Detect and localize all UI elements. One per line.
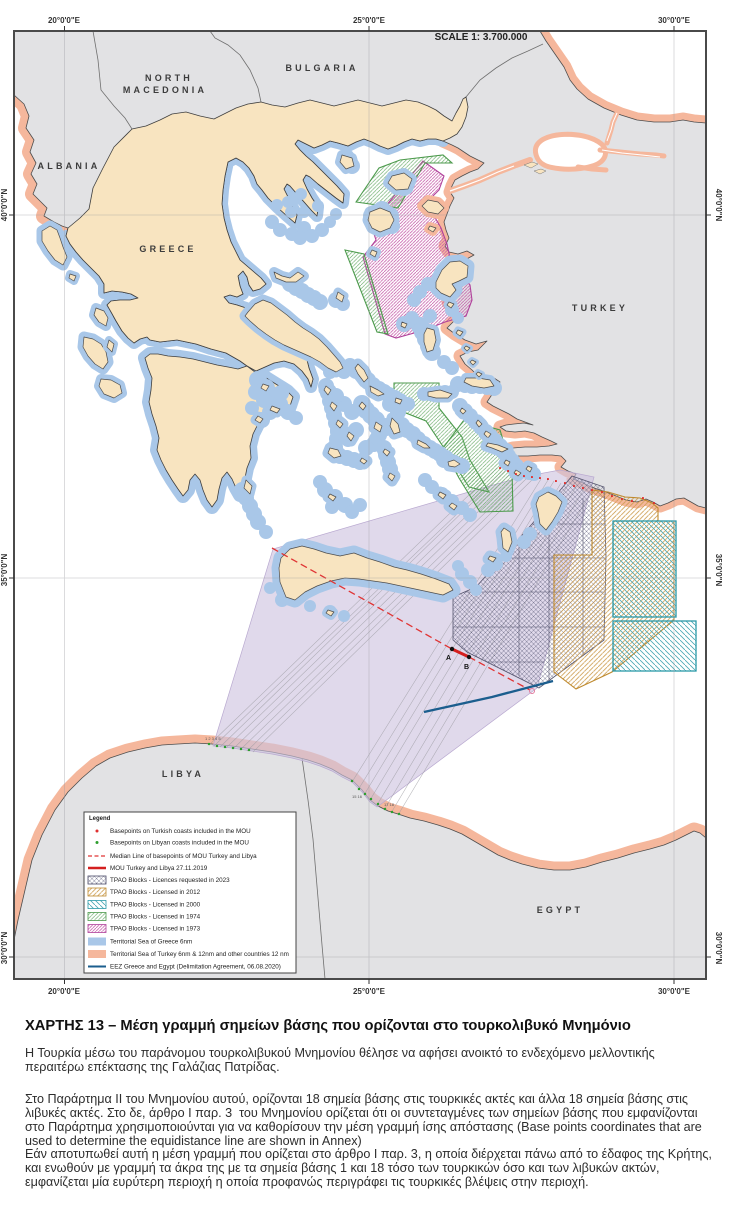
svg-text:TPAO Blocks - Licensed in 1974: TPAO Blocks - Licensed in 1974	[110, 914, 201, 921]
svg-text:MACEDONIA: MACEDONIA	[123, 85, 207, 95]
svg-text:30°0'0"E: 30°0'0"E	[658, 16, 691, 25]
svg-text:20°0'0"E: 20°0'0"E	[48, 16, 81, 25]
svg-text:MOU Turkey and Libya 27.11.201: MOU Turkey and Libya 27.11.2019	[110, 865, 208, 872]
svg-text:20°0'0"E: 20°0'0"E	[48, 987, 81, 996]
svg-text:NORTH: NORTH	[145, 73, 193, 83]
svg-text:17 18: 17 18	[384, 802, 395, 807]
svg-text:TPAO Blocks - Licensed in 2000: TPAO Blocks - Licensed in 2000	[110, 902, 201, 909]
svg-text:LIBYA: LIBYA	[162, 769, 204, 779]
svg-text:EGYPT: EGYPT	[537, 905, 584, 915]
svg-text:Basepoints on Libyan coasts in: Basepoints on Libyan coasts included in …	[110, 840, 249, 847]
svg-text:TURKEY: TURKEY	[572, 303, 628, 313]
svg-text:40°0'0"N: 40°0'0"N	[714, 189, 723, 222]
svg-text:Legend: Legend	[89, 816, 111, 822]
svg-text:TPAO Blocks - Licensed in 1973: TPAO Blocks - Licensed in 1973	[110, 926, 201, 933]
svg-text:25°0'0"E: 25°0'0"E	[353, 987, 386, 996]
svg-text:35°0'0"N: 35°0'0"N	[0, 554, 9, 587]
svg-text:ALBANIA: ALBANIA	[38, 161, 101, 171]
svg-text:30°0'0"N: 30°0'0"N	[0, 932, 9, 965]
svg-text:GREECE: GREECE	[139, 244, 196, 254]
svg-text:A: A	[446, 655, 451, 662]
svg-text:TPAO Blocks - Licensed in 2012: TPAO Blocks - Licensed in 2012	[110, 889, 201, 896]
svg-text:TPAO Blocks - Licences request: TPAO Blocks - Licences requested in 2023	[110, 877, 230, 884]
svg-text:35°0'0"N: 35°0'0"N	[714, 554, 723, 587]
svg-text:1 2 3 4 5: 1 2 3 4 5	[205, 736, 221, 741]
svg-text:B: B	[464, 664, 469, 671]
svg-text:Territorial Sea of Greece 6nm: Territorial Sea of Greece 6nm	[110, 939, 192, 946]
svg-text:Basepoints on Turkish coasts i: Basepoints on Turkish coasts included in…	[110, 828, 251, 835]
svg-text:40°0'0"N: 40°0'0"N	[0, 189, 9, 222]
svg-text:EEZ Greece and Egypt (Delimita: EEZ Greece and Egypt (Delimitation Agree…	[110, 964, 281, 971]
svg-text:25°0'0"E: 25°0'0"E	[353, 16, 386, 25]
svg-text:30°0'0"N: 30°0'0"N	[714, 932, 723, 965]
svg-text:SCALE 1: 3.700.000: SCALE 1: 3.700.000	[435, 32, 528, 43]
svg-text:BULGARIA: BULGARIA	[285, 63, 358, 73]
svg-text:Territorial Sea of Turkey 6nm: Territorial Sea of Turkey 6nm & 12nm and…	[110, 951, 289, 958]
svg-text:Median Line of basepoints of M: Median Line of basepoints of MOU Turkey …	[110, 853, 257, 860]
svg-text:30°0'0"E: 30°0'0"E	[658, 987, 691, 996]
svg-text:15 16: 15 16	[352, 794, 363, 799]
